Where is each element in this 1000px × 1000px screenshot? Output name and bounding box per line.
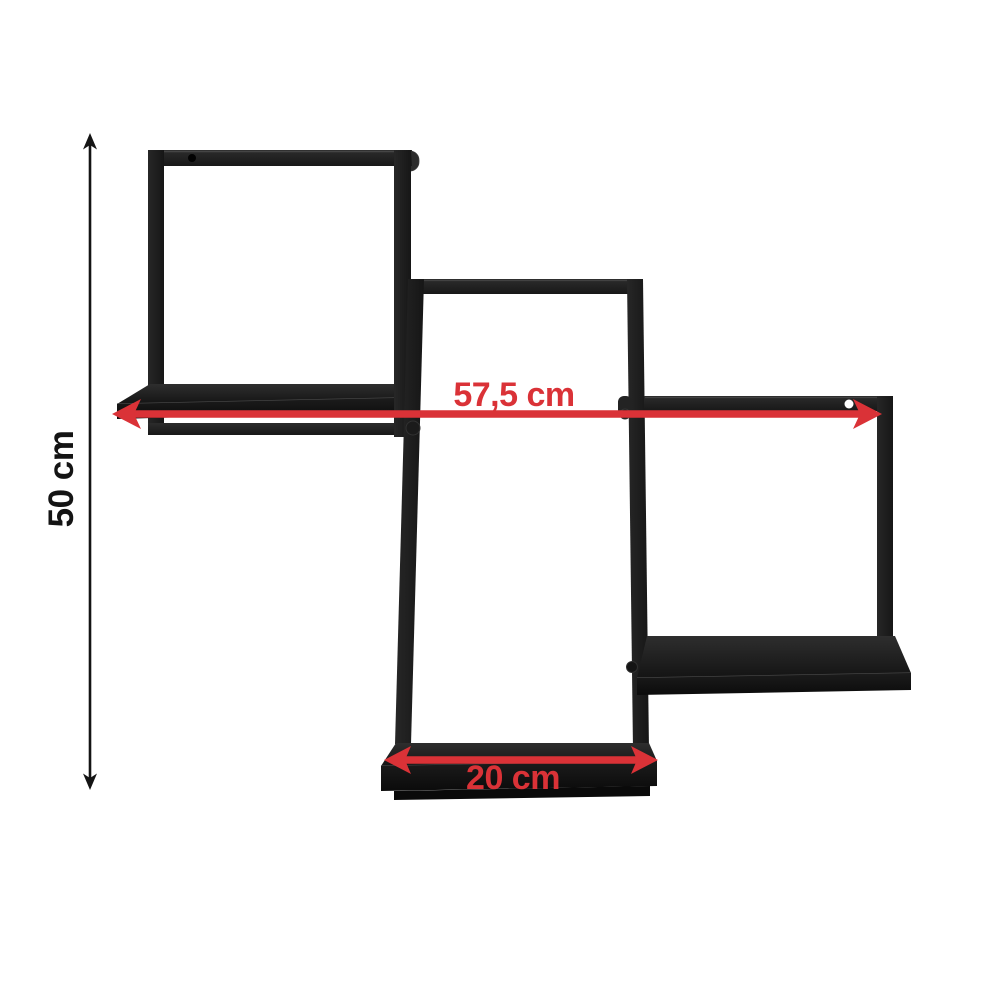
bolt-right-shelf-joint	[627, 662, 638, 673]
left-frame	[117, 150, 419, 437]
right-shelf-top	[637, 636, 911, 678]
product-image: 50 cm 57,5 cm 20 cm	[0, 0, 1000, 1000]
left-frame-bottom-rail	[148, 423, 411, 435]
width-dimension-label: 57,5 cm	[453, 376, 574, 414]
mounting-hole-left	[188, 154, 196, 162]
wall-shelf	[117, 150, 911, 800]
right-frame-right-post	[877, 396, 893, 638]
left-frame-top-rail	[148, 150, 412, 166]
height-dimension: 50 cm	[42, 133, 97, 790]
height-dimension-label: 50 cm	[42, 431, 81, 528]
middle-frame-top-rail	[408, 279, 643, 294]
middle-frame	[381, 279, 657, 800]
right-frame	[618, 396, 911, 695]
wall-shelf-drawing: 50 cm 57,5 cm 20 cm	[0, 0, 1000, 1000]
mounting-hole-right	[845, 400, 854, 409]
left-frame-left-post	[148, 150, 164, 423]
bolt-left-joint	[406, 421, 420, 435]
depth-dimension-label: 20 cm	[466, 759, 560, 797]
